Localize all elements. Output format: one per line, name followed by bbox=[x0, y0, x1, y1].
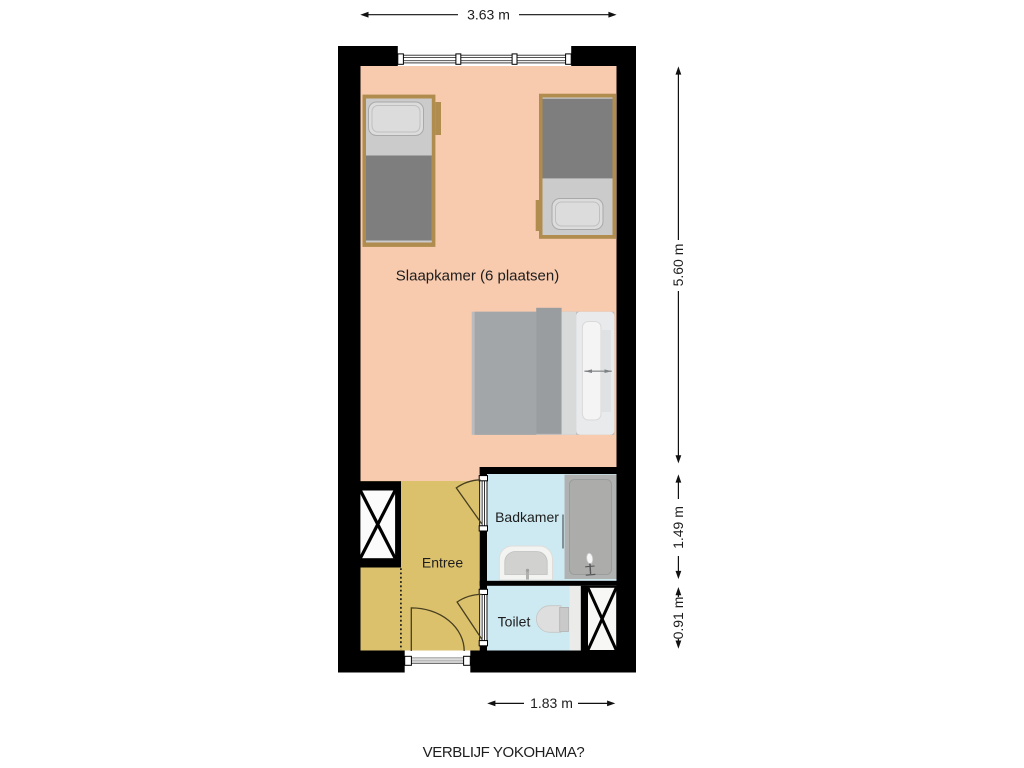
svg-text:1.83 m: 1.83 m bbox=[530, 695, 573, 711]
svg-text:VERBLIJF YOKOHAMA?: VERBLIJF YOKOHAMA? bbox=[423, 744, 585, 761]
svg-text:Entree: Entree bbox=[422, 554, 463, 570]
svg-text:5.60 m: 5.60 m bbox=[670, 244, 686, 287]
svg-text:Toilet: Toilet bbox=[498, 614, 531, 630]
svg-text:Badkamer: Badkamer bbox=[495, 509, 559, 525]
svg-text:1.49 m: 1.49 m bbox=[670, 506, 686, 549]
svg-text:3.63 m: 3.63 m bbox=[467, 6, 510, 22]
svg-text:0.91 m: 0.91 m bbox=[670, 597, 686, 640]
svg-text:Slaapkamer (6 plaatsen): Slaapkamer (6 plaatsen) bbox=[396, 268, 559, 285]
